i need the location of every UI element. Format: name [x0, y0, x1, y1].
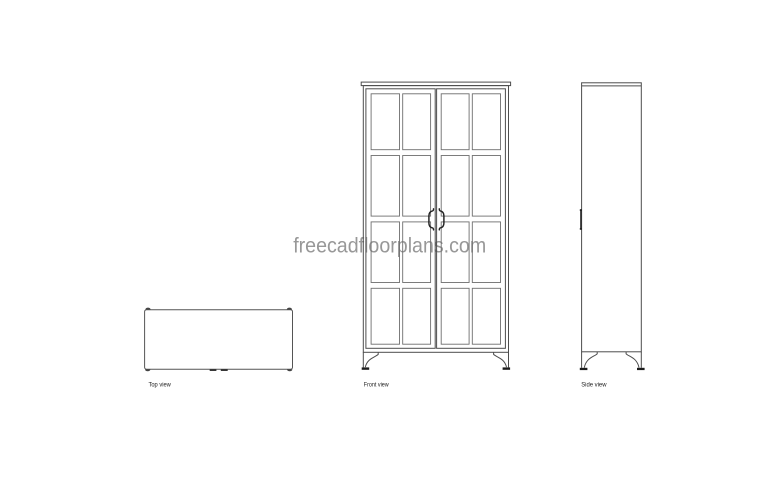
- svg-text:Front view: Front view: [364, 381, 389, 388]
- svg-text:Top view: Top view: [149, 381, 172, 388]
- svg-text:Side view: Side view: [581, 381, 607, 388]
- svg-text:freecadfloorplans.com: freecadfloorplans.com: [293, 234, 486, 257]
